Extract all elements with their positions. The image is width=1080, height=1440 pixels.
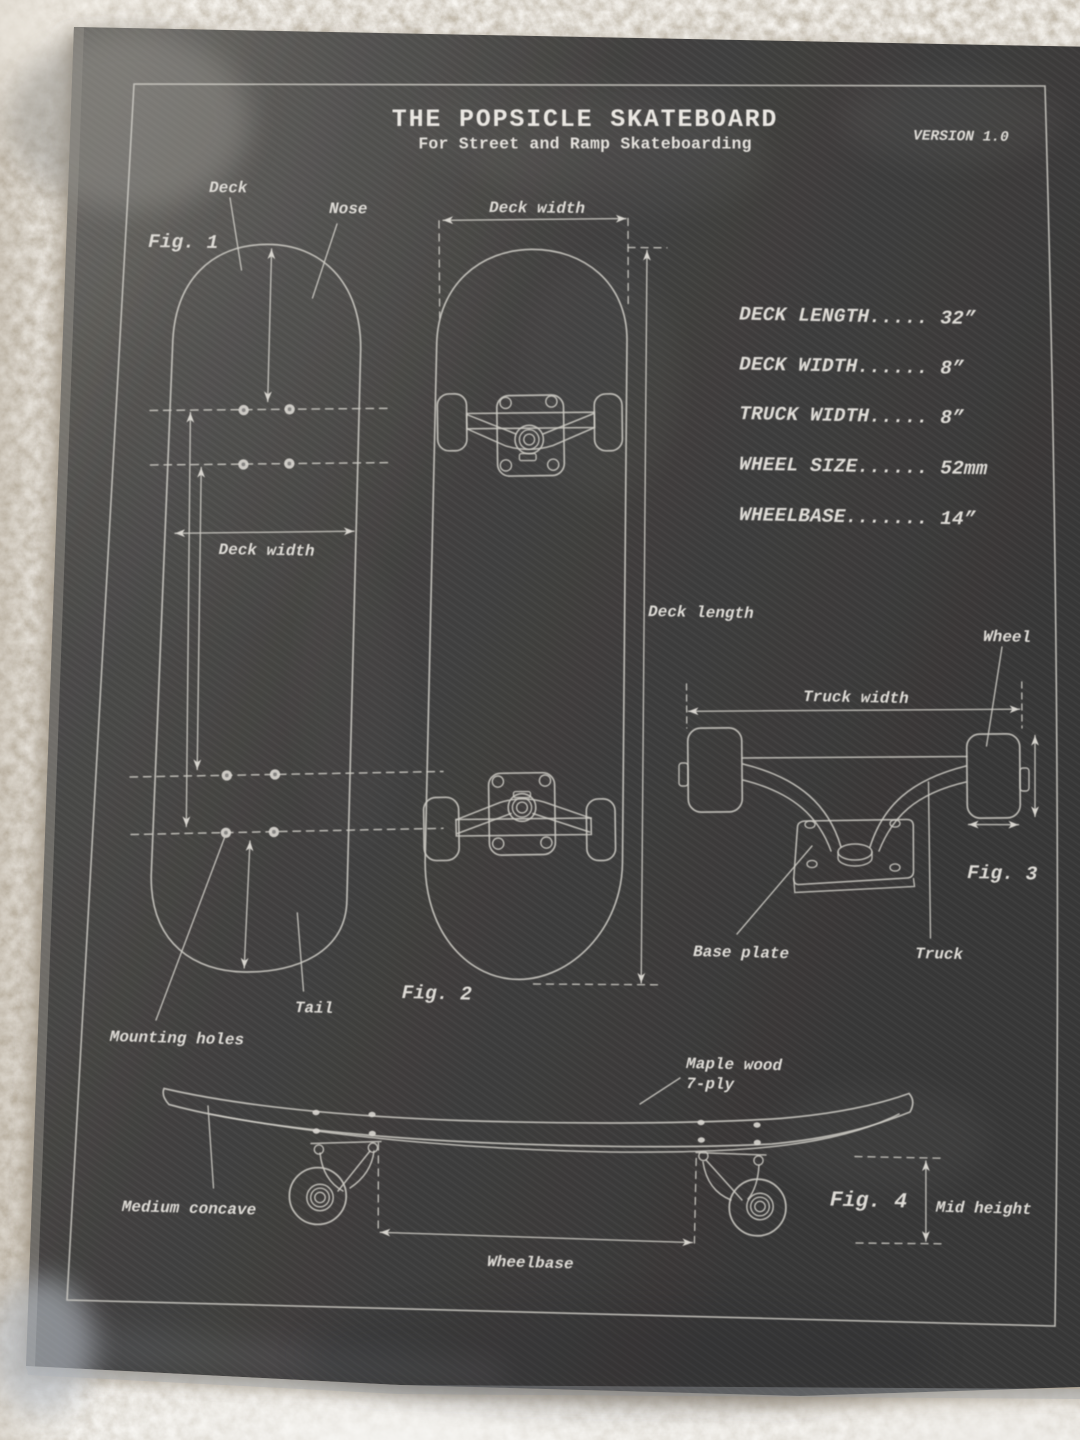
svg-text:VERSION 1.0: VERSION 1.0 <box>913 129 1009 146</box>
svg-text:Deck: Deck <box>209 179 248 197</box>
svg-text:Base plate: Base plate <box>693 943 789 963</box>
svg-text:Fig. 4: Fig. 4 <box>829 1189 907 1215</box>
svg-text:WHEELBASE....... 14”: WHEELBASE....... 14” <box>739 504 977 531</box>
svg-text:Deck width: Deck width <box>218 541 314 561</box>
svg-text:Fig. 1: Fig. 1 <box>148 231 219 254</box>
svg-text:7-ply: 7-ply <box>686 1075 736 1094</box>
svg-text:Fig. 2: Fig. 2 <box>401 982 472 1006</box>
svg-text:Tail: Tail <box>295 999 334 1018</box>
svg-text:Truck width: Truck width <box>803 688 909 708</box>
svg-text:Medium concave: Medium concave <box>121 1198 257 1220</box>
svg-text:Mounting holes: Mounting holes <box>108 1028 244 1050</box>
svg-text:Deck length: Deck length <box>648 603 754 623</box>
svg-text:DECK LENGTH..... 32”: DECK LENGTH..... 32” <box>739 304 977 331</box>
svg-text:DECK WIDTH...... 8”: DECK WIDTH...... 8” <box>739 354 965 380</box>
svg-text:For Street and Ramp Skateboard: For Street and Ramp Skateboarding <box>418 135 751 154</box>
svg-text:Mid height: Mid height <box>934 1199 1031 1219</box>
svg-text:Wheel: Wheel <box>983 628 1031 647</box>
svg-text:Fig. 3: Fig. 3 <box>967 862 1038 885</box>
svg-text:Maple wood: Maple wood <box>685 1055 783 1075</box>
svg-text:Deck width: Deck width <box>489 199 585 218</box>
svg-text:THE POPSICLE SKATEBOARD: THE POPSICLE SKATEBOARD <box>392 105 778 134</box>
svg-text:Wheelbase: Wheelbase <box>487 1253 574 1274</box>
svg-text:Truck: Truck <box>915 945 964 964</box>
svg-text:Nose: Nose <box>329 200 368 218</box>
svg-text:TRUCK WIDTH..... 8”: TRUCK WIDTH..... 8” <box>739 403 965 429</box>
